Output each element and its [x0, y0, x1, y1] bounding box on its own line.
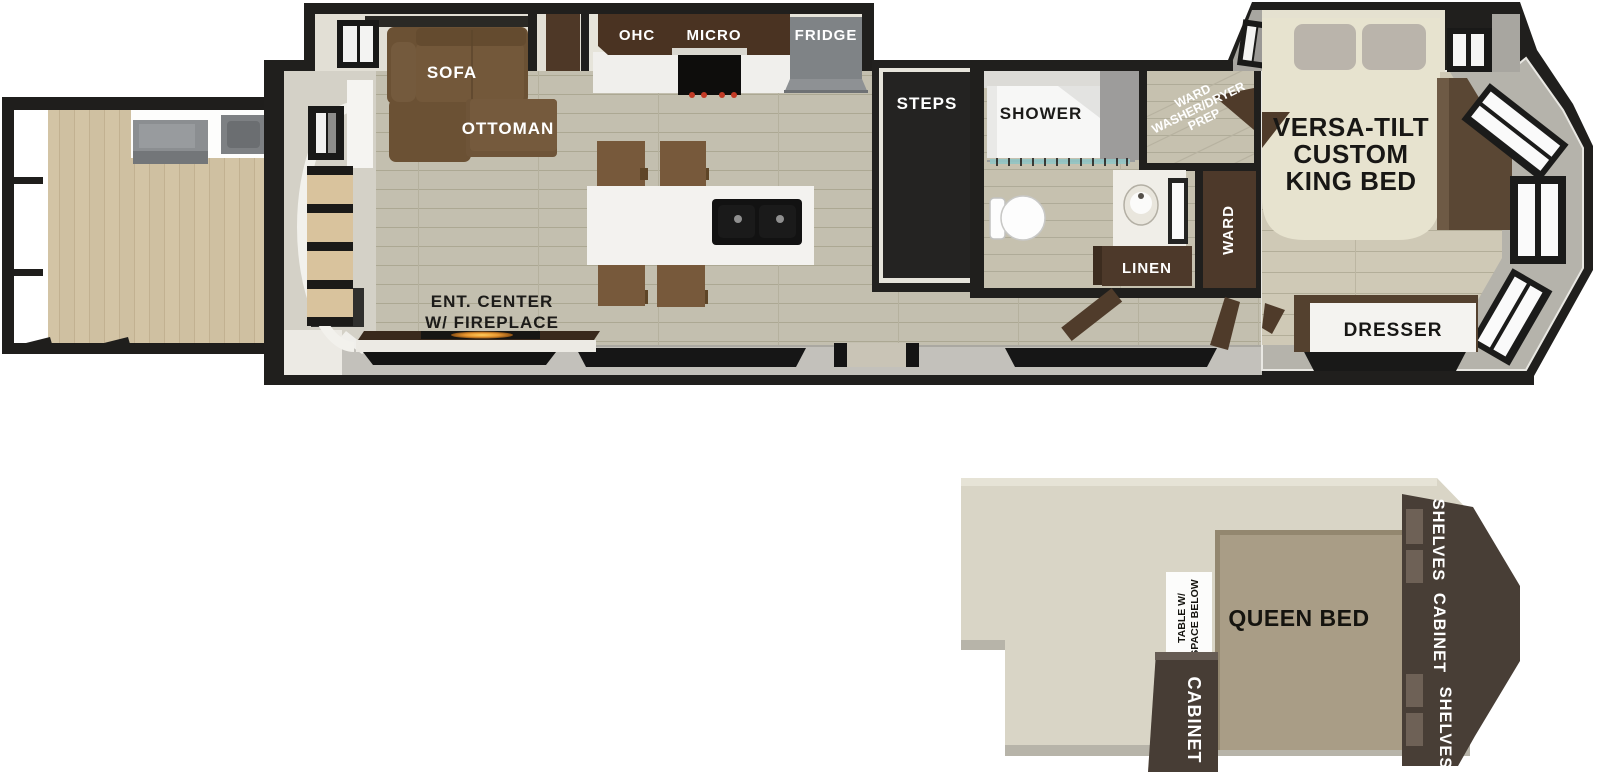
svg-text:WARD: WARD: [1220, 205, 1237, 255]
svg-text:CABINET: CABINET: [1184, 677, 1204, 764]
svg-text:SHOWER: SHOWER: [1000, 104, 1083, 123]
svg-text:OTTOMAN: OTTOMAN: [462, 119, 555, 138]
svg-text:MICRO: MICRO: [687, 27, 742, 44]
svg-text:SHELVES: SHELVES: [1436, 687, 1454, 770]
svg-text:DRESSER: DRESSER: [1344, 320, 1443, 341]
svg-text:SPACE BELOW: SPACE BELOW: [1189, 579, 1201, 656]
svg-text:CUSTOM: CUSTOM: [1293, 139, 1408, 169]
svg-text:TABLE W/: TABLE W/: [1176, 593, 1188, 643]
svg-text:FRIDGE: FRIDGE: [795, 27, 858, 44]
svg-text:W/ FIREPLACE: W/ FIREPLACE: [425, 313, 559, 332]
svg-text:KING BED: KING BED: [1285, 166, 1416, 196]
svg-text:QUEEN BED: QUEEN BED: [1228, 605, 1369, 631]
svg-text:VERSA-TILT: VERSA-TILT: [1273, 112, 1429, 142]
svg-text:OHC: OHC: [619, 27, 655, 44]
svg-text:SHELVES: SHELVES: [1429, 499, 1447, 582]
svg-text:ENT. CENTER: ENT. CENTER: [431, 292, 553, 311]
svg-text:SOFA: SOFA: [427, 63, 477, 82]
svg-text:LINEN: LINEN: [1122, 260, 1172, 277]
svg-text:STEPS: STEPS: [897, 94, 958, 113]
svg-text:CABINET: CABINET: [1430, 593, 1448, 673]
